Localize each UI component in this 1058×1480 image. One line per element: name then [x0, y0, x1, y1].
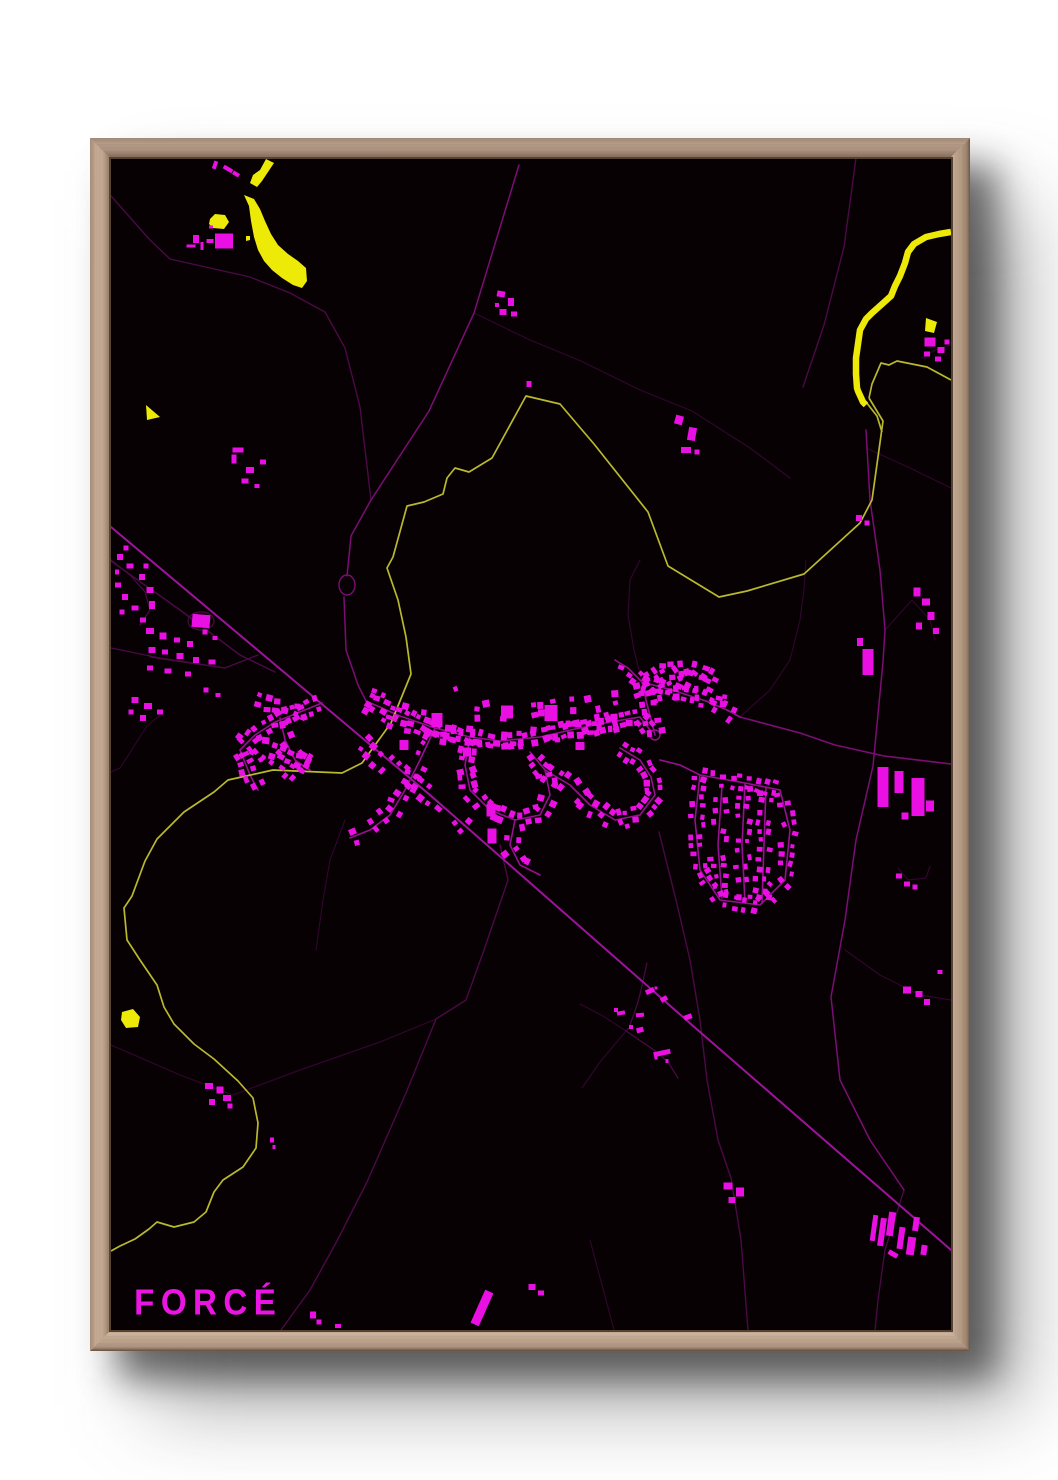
svg-text:FORCÉ: FORCÉ — [134, 1281, 282, 1323]
